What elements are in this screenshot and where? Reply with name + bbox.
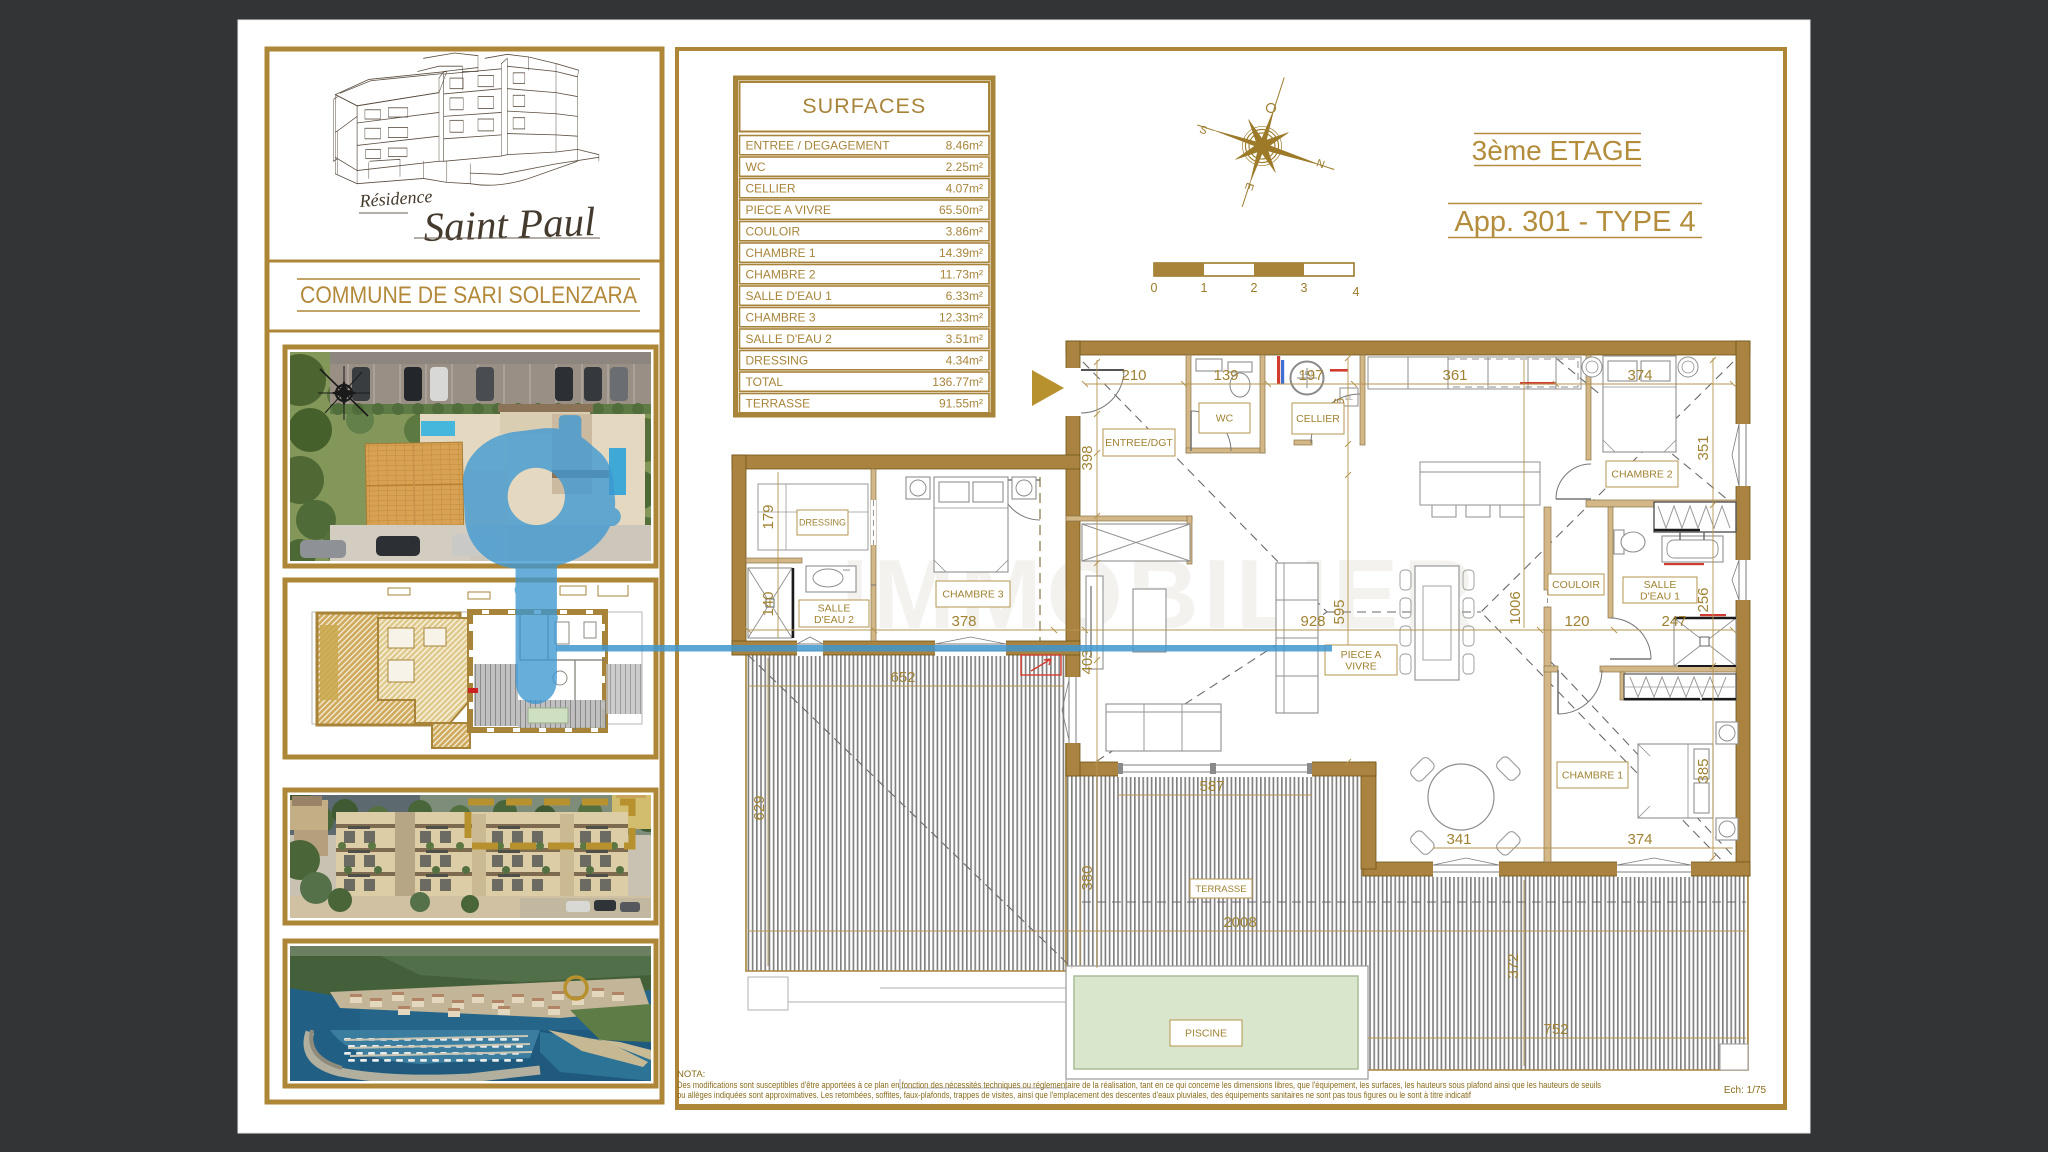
svg-text:136.77m²: 136.77m² (932, 375, 983, 389)
svg-text:CHAMBRE 2: CHAMBRE 2 (1611, 469, 1672, 481)
svg-text:WC: WC (1216, 413, 1234, 425)
svg-text:11.73m²: 11.73m² (940, 268, 983, 282)
svg-text:8.46m²: 8.46m² (946, 139, 983, 153)
svg-text:PISCINE: PISCINE (1185, 1028, 1227, 1040)
svg-text:SALLE: SALLE (818, 602, 851, 614)
svg-text:6.33m²: 6.33m² (946, 289, 983, 303)
svg-text:2: 2 (1251, 281, 1258, 295)
svg-text:629: 629 (751, 795, 768, 820)
svg-text:3: 3 (1301, 281, 1308, 295)
svg-text:341: 341 (1446, 831, 1471, 848)
svg-text:652: 652 (890, 669, 915, 686)
svg-text:CELLIER: CELLIER (746, 182, 796, 196)
svg-text:Ech: 1/75: Ech: 1/75 (1724, 1085, 1767, 1096)
svg-text:65.50m²: 65.50m² (939, 203, 983, 217)
svg-text:CHAMBRE 3: CHAMBRE 3 (942, 589, 1003, 601)
svg-text:361: 361 (1442, 367, 1467, 384)
svg-text:CHAMBRE 2: CHAMBRE 2 (746, 268, 816, 282)
svg-text:1006: 1006 (1507, 591, 1524, 624)
svg-text:14.39m²: 14.39m² (939, 246, 983, 260)
svg-text:DRESSING: DRESSING (746, 354, 809, 368)
svg-text:210: 210 (1121, 367, 1146, 384)
svg-text:App. 301 - TYPE 4: App. 301 - TYPE 4 (1454, 206, 1695, 238)
svg-text:ENTREE/DGT: ENTREE/DGT (1105, 437, 1173, 449)
svg-text:91.55m²: 91.55m² (939, 397, 983, 411)
svg-text:SURFACES: SURFACES (802, 94, 926, 118)
svg-text:0: 0 (1151, 281, 1158, 295)
svg-text:3ème ETAGE: 3ème ETAGE (1472, 135, 1643, 166)
svg-text:D'EAU 1: D'EAU 1 (1640, 590, 1680, 602)
svg-text:179: 179 (760, 504, 777, 529)
svg-text:COULOIR: COULOIR (746, 225, 801, 239)
svg-text:WC: WC (746, 160, 766, 174)
svg-text:140: 140 (760, 591, 777, 616)
svg-text:SALLE D'EAU 2: SALLE D'EAU 2 (746, 332, 833, 346)
svg-text:Des modifications sont suscept: Des modifications sont susceptibles d'êt… (677, 1080, 1601, 1090)
svg-text:PIECE A VIVRE: PIECE A VIVRE (746, 203, 831, 217)
svg-text:256: 256 (1695, 587, 1712, 612)
svg-text:COULOIR: COULOIR (1552, 579, 1600, 591)
svg-text:Saint Paul: Saint Paul (423, 198, 596, 250)
svg-text:ou allèges indiquées sont appr: ou allèges indiquées sont approximatives… (677, 1090, 1471, 1100)
svg-text:TERRASSE: TERRASSE (1195, 884, 1246, 895)
svg-text:385: 385 (1695, 758, 1712, 783)
svg-text:NOTA:: NOTA: (677, 1069, 705, 1080)
svg-text:398: 398 (1079, 445, 1096, 470)
svg-text:CHAMBRE 1: CHAMBRE 1 (1562, 770, 1623, 782)
svg-text:380: 380 (1079, 865, 1096, 890)
svg-text:ENTREE / DEGAGEMENT: ENTREE / DEGAGEMENT (746, 139, 891, 153)
svg-text:595: 595 (1331, 599, 1348, 624)
svg-text:1: 1 (1201, 281, 1208, 295)
svg-text:378: 378 (951, 613, 976, 630)
svg-text:D'EAU 2: D'EAU 2 (814, 614, 854, 626)
svg-text:247: 247 (1661, 613, 1686, 630)
svg-text:CHAMBRE 1: CHAMBRE 1 (746, 246, 816, 260)
svg-text:372: 372 (1505, 953, 1522, 978)
svg-text:SALLE: SALLE (1644, 579, 1677, 591)
svg-text:4: 4 (1353, 285, 1360, 299)
svg-text:2008: 2008 (1223, 914, 1256, 931)
svg-text:VIVRE: VIVRE (1345, 660, 1377, 672)
svg-text:4.34m²: 4.34m² (946, 354, 983, 368)
svg-text:139: 139 (1213, 367, 1238, 384)
svg-text:SALLE D'EAU 1: SALLE D'EAU 1 (746, 289, 833, 303)
svg-text:403: 403 (1079, 649, 1096, 674)
svg-text:PIECE A: PIECE A (1341, 649, 1382, 661)
svg-text:197: 197 (1298, 367, 1323, 384)
svg-text:351: 351 (1695, 435, 1712, 460)
svg-text:120: 120 (1564, 613, 1589, 630)
svg-text:587: 587 (1199, 778, 1224, 795)
svg-text:374: 374 (1627, 367, 1652, 384)
svg-text:2.25m²: 2.25m² (946, 160, 983, 174)
svg-text:TOTAL: TOTAL (746, 375, 784, 389)
svg-text:3.86m²: 3.86m² (946, 225, 983, 239)
svg-text:3.51m²: 3.51m² (946, 332, 983, 346)
svg-text:4.07m²: 4.07m² (946, 182, 983, 196)
svg-text:CHAMBRE 3: CHAMBRE 3 (746, 311, 816, 325)
svg-text:DRESSING: DRESSING (799, 518, 846, 528)
svg-text:COMMUNE DE SARI SOLENZARA: COMMUNE DE SARI SOLENZARA (300, 282, 637, 309)
svg-text:752: 752 (1543, 1021, 1568, 1038)
svg-text:TERRASSE: TERRASSE (746, 397, 811, 411)
svg-text:928: 928 (1300, 613, 1325, 630)
svg-text:374: 374 (1627, 831, 1652, 848)
svg-text:12.33m²: 12.33m² (939, 311, 983, 325)
svg-text:CELLIER: CELLIER (1296, 413, 1340, 425)
